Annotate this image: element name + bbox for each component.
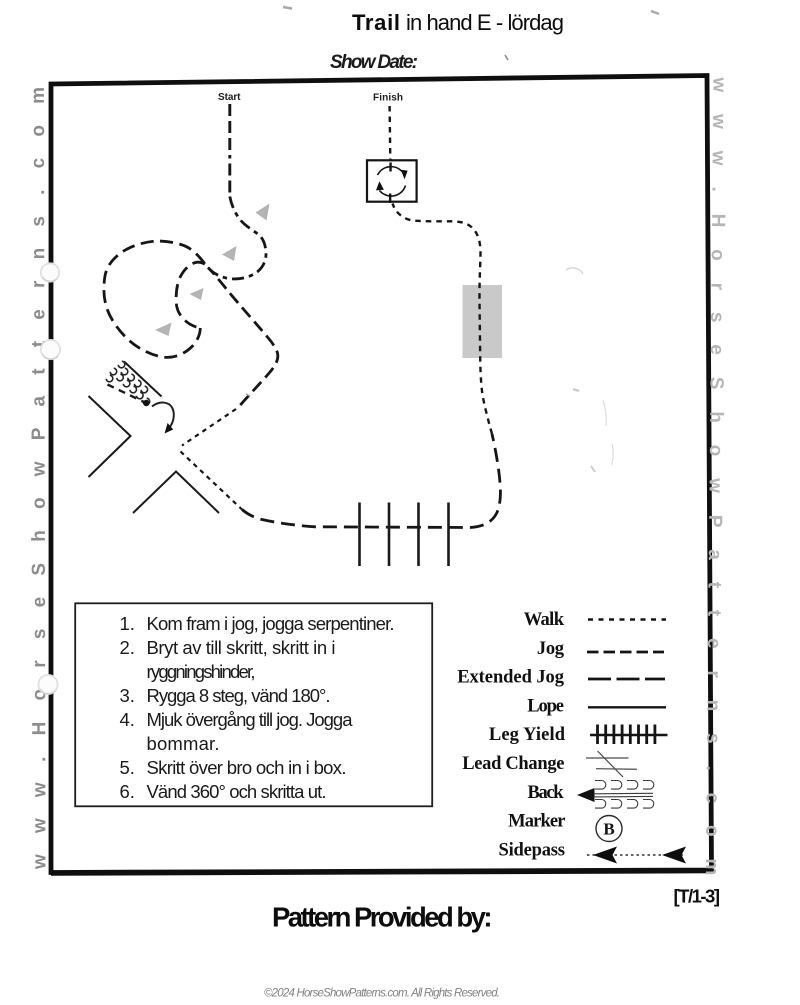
svg-text:Trail: Trail (352, 10, 400, 35)
svg-text:4.: 4. (120, 709, 135, 730)
svg-text:Extended Jog: Extended Jog (457, 668, 565, 688)
svg-text:Start: Start (218, 92, 241, 103)
svg-text:Lead Change: Lead Change (462, 754, 564, 774)
svg-text:Mjuk övergång till jog. Jogga: Mjuk övergång till jog. Jogga (147, 709, 354, 730)
svg-text:3.: 3. (120, 685, 135, 706)
svg-text:5.: 5. (120, 757, 135, 778)
svg-text:Pattern Provided by:: Pattern Provided by: (272, 902, 493, 933)
svg-text:Show Date:: Show Date: (330, 52, 418, 73)
svg-text:[T/1-3]: [T/1-3] (674, 886, 721, 907)
svg-text:www.HorseShowPatterns.com: www.HorseShowPatterns.com (701, 76, 730, 893)
svg-text:Kom fram i jog, jogga serpenti: Kom fram i jog, jogga serpentiner. (147, 613, 395, 634)
svg-text:Rygga 8 steg, vänd 180°.: Rygga 8 steg, vänd 180°. (147, 685, 331, 706)
svg-text:Leg Yield: Leg Yield (489, 725, 566, 745)
svg-text:Finish: Finish (373, 92, 403, 103)
svg-text:Sidepass: Sidepass (499, 840, 566, 860)
svg-text:Walk: Walk (524, 610, 565, 630)
svg-text:Vänd 360° och skritta ut.: Vänd 360° och skritta ut. (147, 781, 327, 802)
svg-text:1.: 1. (120, 613, 135, 634)
svg-text:bommar.: bommar. (147, 733, 220, 754)
svg-text:B: B (603, 820, 614, 839)
svg-text:ryggningshinder,: ryggningshinder, (147, 661, 256, 682)
svg-text:www.HorseShowPatterns.com: www.HorseShowPatterns.com (28, 69, 51, 870)
svg-text:©2024 HorseShowPatterns.com. A: ©2024 HorseShowPatterns.com. All Rights … (264, 988, 500, 1000)
svg-text:in hand E - lördag: in hand E - lördag (406, 10, 564, 35)
svg-text:Bryt av till skritt, skritt in: Bryt av till skritt, skritt in i (147, 637, 336, 658)
svg-text:Back: Back (528, 783, 565, 803)
svg-text:6.: 6. (120, 781, 135, 802)
svg-text:2.: 2. (120, 637, 135, 658)
svg-text:Marker: Marker (508, 812, 565, 832)
svg-text:Jog: Jog (537, 639, 565, 659)
svg-text:Lope: Lope (527, 696, 564, 716)
svg-text:Skritt över bro och in i box.: Skritt över bro och in i box. (147, 757, 347, 778)
